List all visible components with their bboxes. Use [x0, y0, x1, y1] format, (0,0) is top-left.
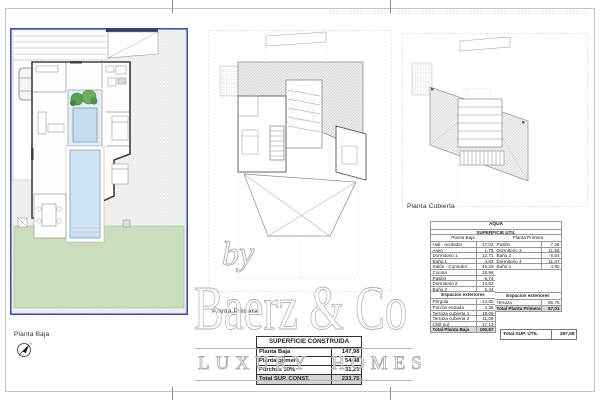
planta-baja-plan	[10, 28, 188, 315]
total-superficie-util: Total SUP. ÚTIL 287,58	[500, 329, 577, 340]
superficie-util-planta-primera-table: Planta Primera Pasillo7,28 Dormitorio 31…	[495, 234, 562, 312]
project-name: AQUA	[431, 222, 561, 230]
superficie-construida-title: SUPERFICIE CONSTRUIDA	[257, 337, 361, 348]
pergola-deck	[34, 194, 66, 238]
planta-primera-label: Planta Primera	[212, 308, 258, 315]
scan-texture-strip	[330, 10, 588, 15]
swimming-pool	[66, 146, 104, 242]
skylight	[458, 89, 502, 147]
plan-sheet: Planta Baja	[0, 0, 600, 400]
superficie-util-title: AQUA SUPERFICIE ÚTIL	[430, 221, 562, 234]
louver-comb	[460, 151, 504, 165]
empty-rows	[495, 269, 561, 292]
planta-baja-label: Planta Baja	[14, 331, 49, 338]
entry-canopy	[106, 28, 158, 58]
total-planta-baja-row: Total Planta Baja190,57	[431, 326, 495, 332]
terrace	[244, 174, 356, 236]
plunge-pool	[73, 108, 97, 142]
watermark-rule-top	[195, 348, 412, 349]
void-over-courtyard	[286, 80, 322, 148]
fold-mark	[390, 387, 391, 400]
canopy-projection	[266, 32, 326, 46]
stair	[270, 126, 284, 160]
trellis-grid	[220, 66, 238, 96]
superficie-util-planta-baja-table: Planta Baja Hall - recibidor17,02 Aseo1,…	[430, 234, 496, 333]
fold-mark	[172, 387, 173, 400]
exterior-spaces-header: Espacios exteriores	[495, 292, 561, 299]
compass-icon	[15, 341, 33, 359]
projection-lines	[458, 165, 502, 203]
superficie-construida-table: SUPERFICIE CONSTRUIDA Planta Baja147,98 …	[256, 336, 362, 385]
planta-cubierta-label: Planta Cubierta	[407, 203, 455, 210]
canopy-projection	[460, 37, 510, 51]
watermark-rule-bottom	[195, 380, 412, 381]
fold-mark	[172, 0, 173, 13]
exterior-spaces-header: Espacios exteriores	[431, 291, 495, 298]
total-planta-primera-row: Total Planta Primera97,01	[495, 305, 561, 311]
courtyard	[68, 90, 102, 146]
trellis-grid	[412, 63, 432, 95]
planta-primera-plan	[208, 30, 392, 292]
planta-cubierta-plan	[402, 33, 588, 207]
bedroom-wing-right	[336, 126, 366, 180]
